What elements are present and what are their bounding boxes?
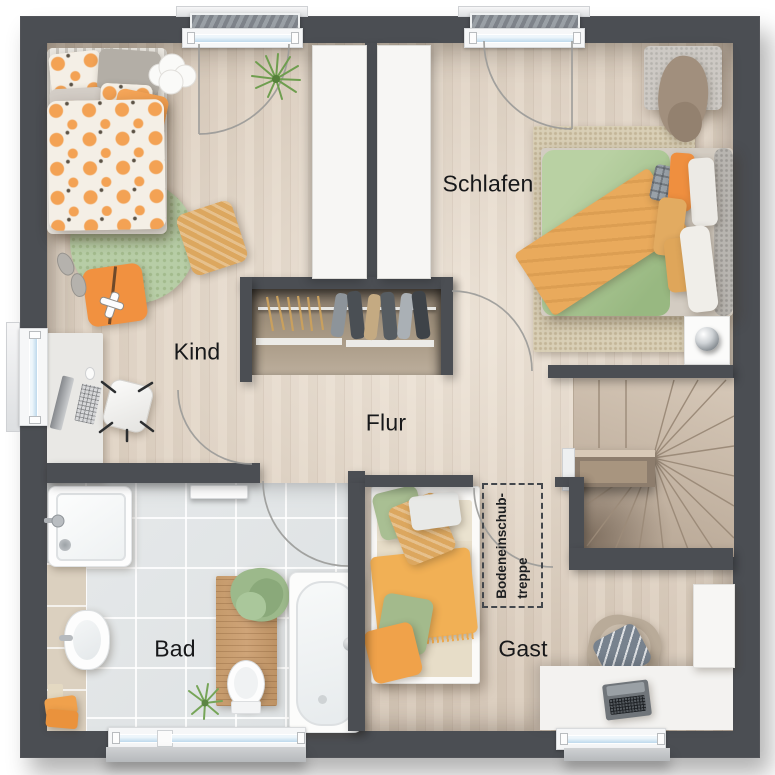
- green-towel: [236, 592, 266, 620]
- room-label-bad: Bad: [154, 636, 196, 663]
- towel-rail: [190, 485, 248, 499]
- pillow: [408, 491, 462, 532]
- room-label-schlafen: Schlafen: [442, 171, 533, 198]
- shower-drain: [59, 539, 71, 551]
- wall: [548, 365, 733, 378]
- window: [182, 28, 303, 48]
- window: [556, 728, 666, 750]
- faucet: [59, 635, 73, 641]
- wall: [441, 277, 453, 375]
- wardrobe: [377, 45, 431, 279]
- bath-drain: [318, 695, 327, 704]
- floor-pillow: [81, 262, 148, 328]
- window: [108, 727, 306, 749]
- toilet-tank: [231, 701, 261, 714]
- laptop: [602, 679, 652, 720]
- clothes-rail: [258, 307, 436, 310]
- closet-shelf: [346, 340, 434, 347]
- wall: [569, 548, 733, 570]
- pillow: [688, 157, 719, 227]
- window: [19, 328, 48, 426]
- attic-stair-marking: Bodeneinschub- treppe: [482, 483, 543, 608]
- child-bed: [47, 48, 167, 234]
- tall-cabinet: [693, 584, 735, 668]
- orange-towel: [45, 709, 78, 730]
- sphere-lamp: [695, 327, 719, 351]
- room-label-gast: Gast: [498, 636, 547, 663]
- closet-shelf: [256, 338, 342, 345]
- wall: [240, 277, 252, 382]
- attic-stair-label: Bodeneinschub- treppe: [492, 493, 534, 599]
- window-sill: [106, 747, 306, 762]
- keyboard: [74, 383, 101, 424]
- window: [464, 28, 585, 48]
- shower: [48, 486, 132, 567]
- wall: [365, 475, 473, 487]
- closet-niche: [252, 289, 441, 375]
- room-label-flur: Flur: [366, 410, 406, 437]
- mouse: [85, 367, 95, 380]
- nightstand: [684, 316, 730, 365]
- stair-landing: [572, 450, 655, 487]
- desk: [47, 333, 103, 480]
- wall: [348, 483, 365, 731]
- window-sill: [564, 748, 670, 761]
- wall: [47, 463, 260, 483]
- room-label-kind: Kind: [174, 339, 221, 366]
- sink: [64, 610, 110, 670]
- duvet: [47, 99, 166, 231]
- wardrobe: [312, 45, 367, 279]
- monitor: [50, 375, 75, 430]
- window-sill: [6, 322, 20, 432]
- wall: [348, 471, 365, 483]
- floor-plan: Bodeneinschub- treppe Kind Schlafen Flur…: [0, 0, 775, 775]
